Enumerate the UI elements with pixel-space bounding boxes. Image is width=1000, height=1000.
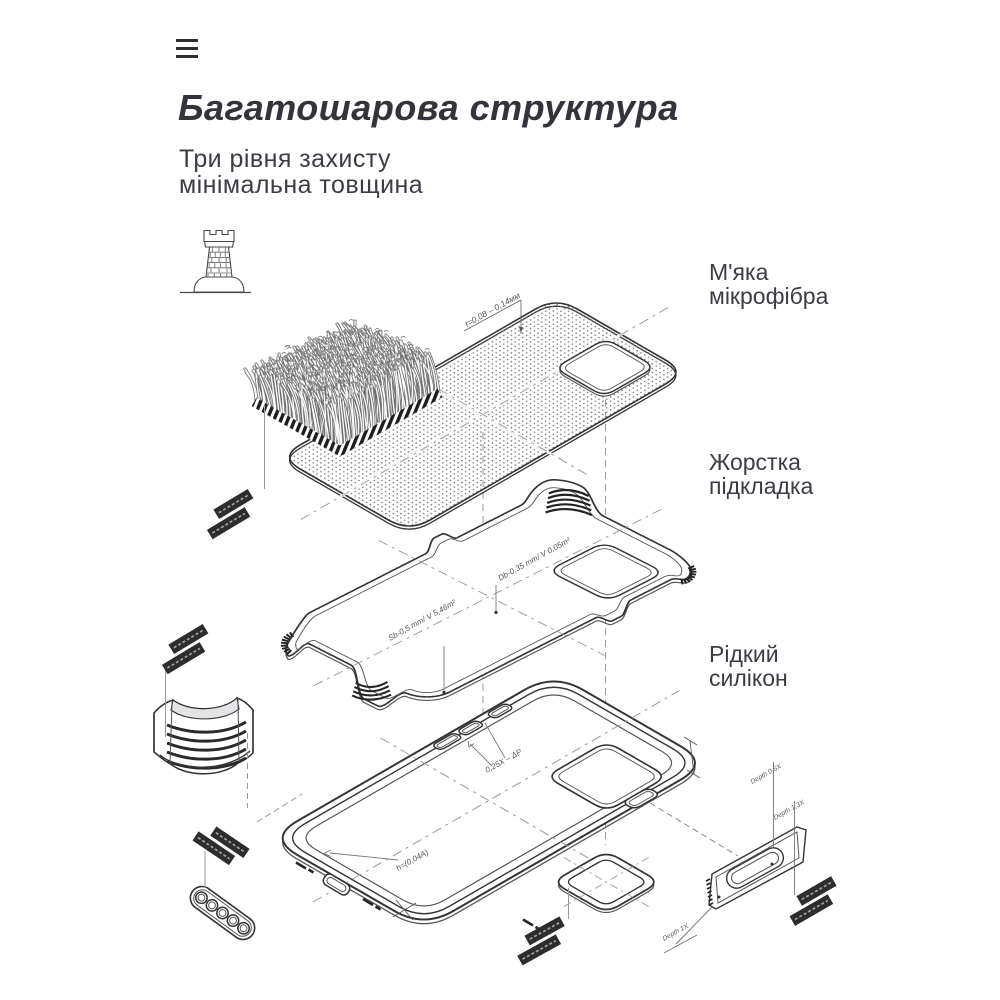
svg-text:Depth 1,3X: Depth 1,3X	[773, 799, 807, 822]
svg-text:Depth 0,5X: Depth 0,5X	[750, 763, 784, 786]
svg-text:Depth 1X: Depth 1X	[662, 923, 691, 943]
